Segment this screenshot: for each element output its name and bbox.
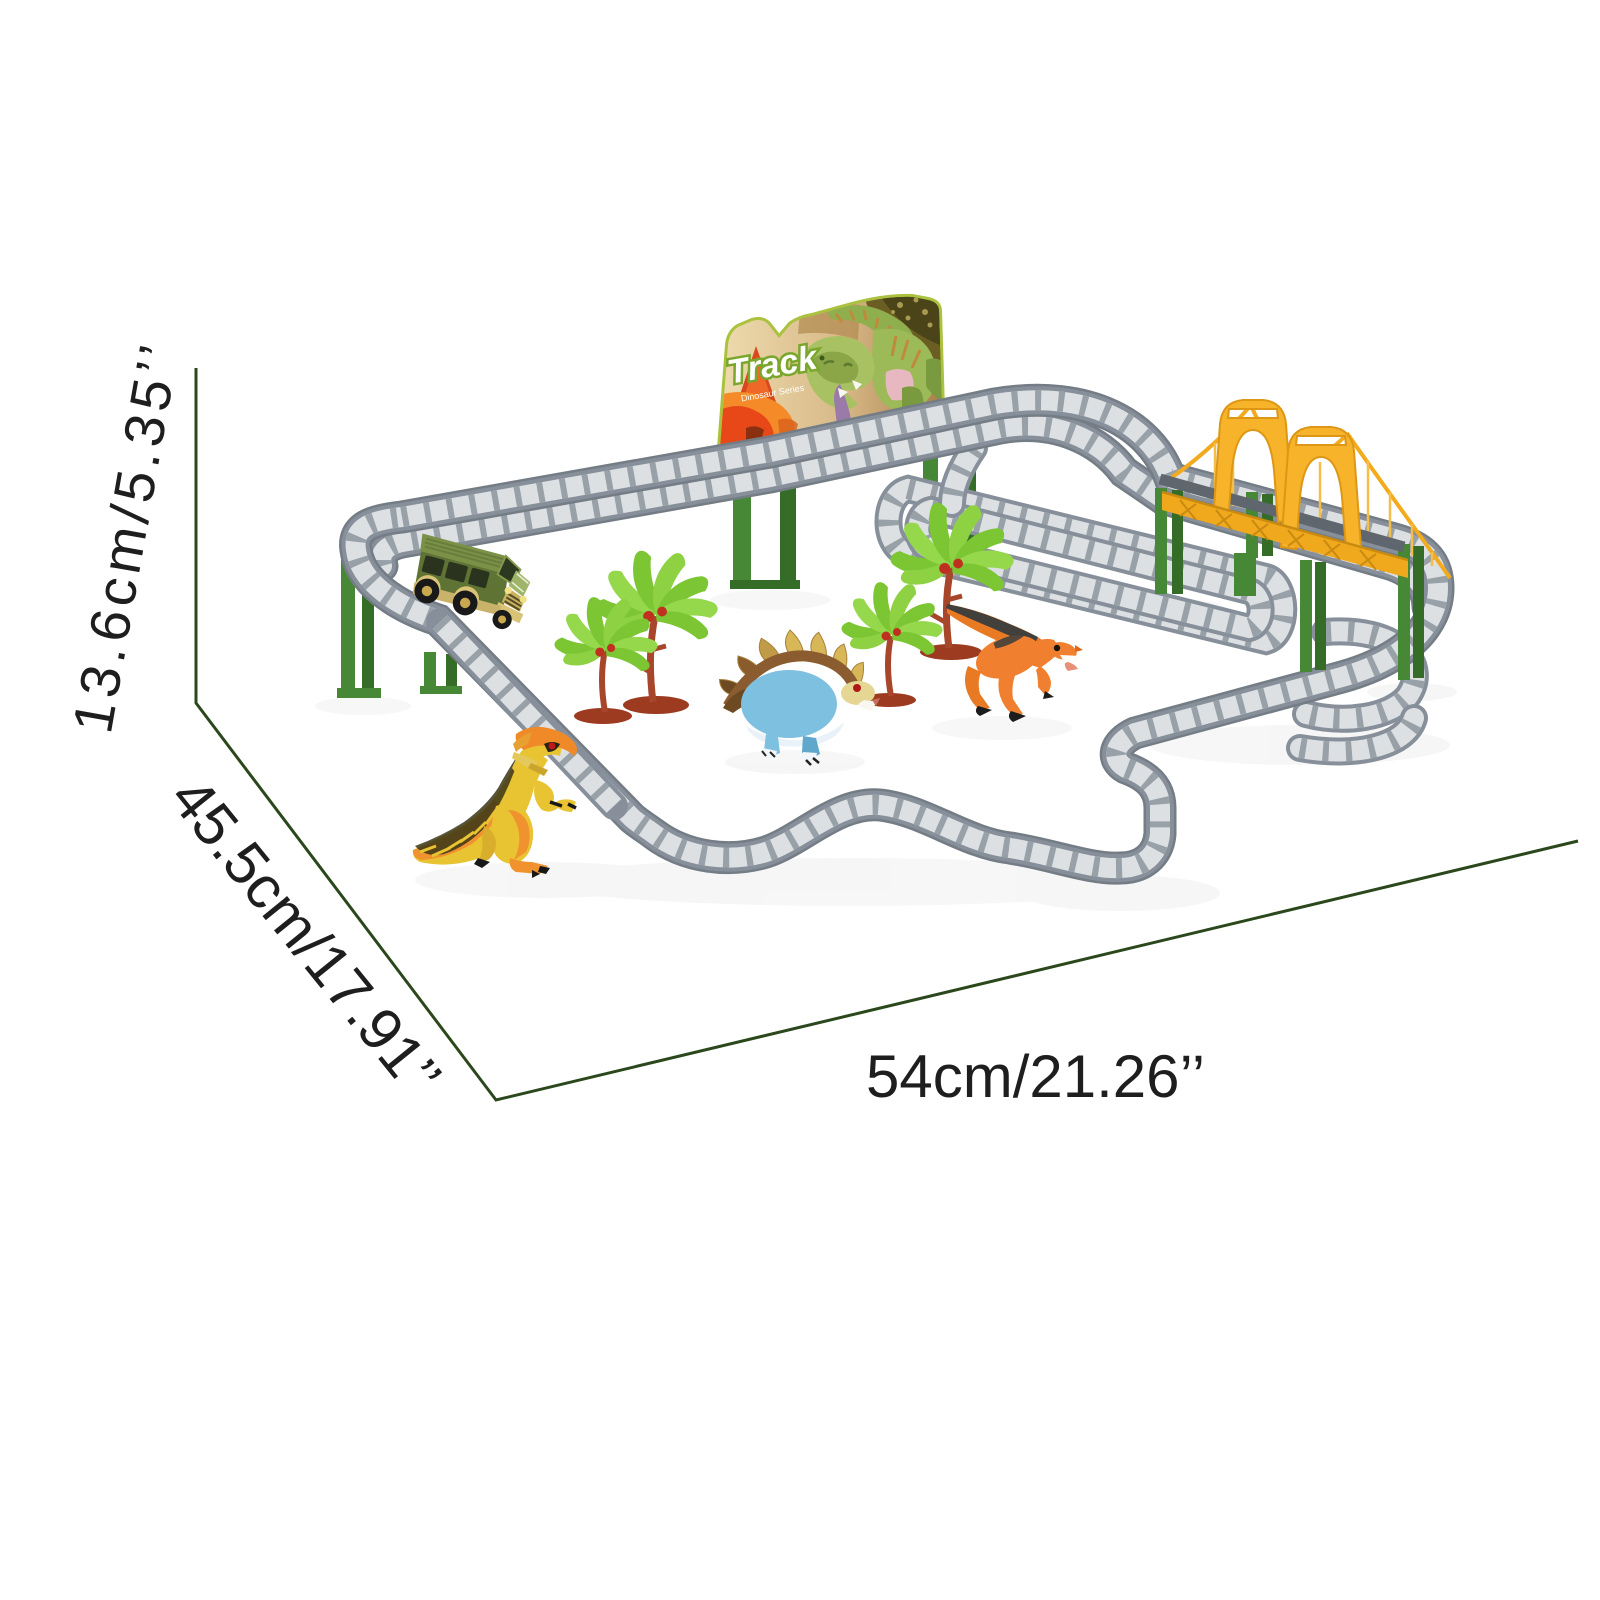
svg-text:54cm/21.26’’: 54cm/21.26’’	[866, 1043, 1205, 1110]
